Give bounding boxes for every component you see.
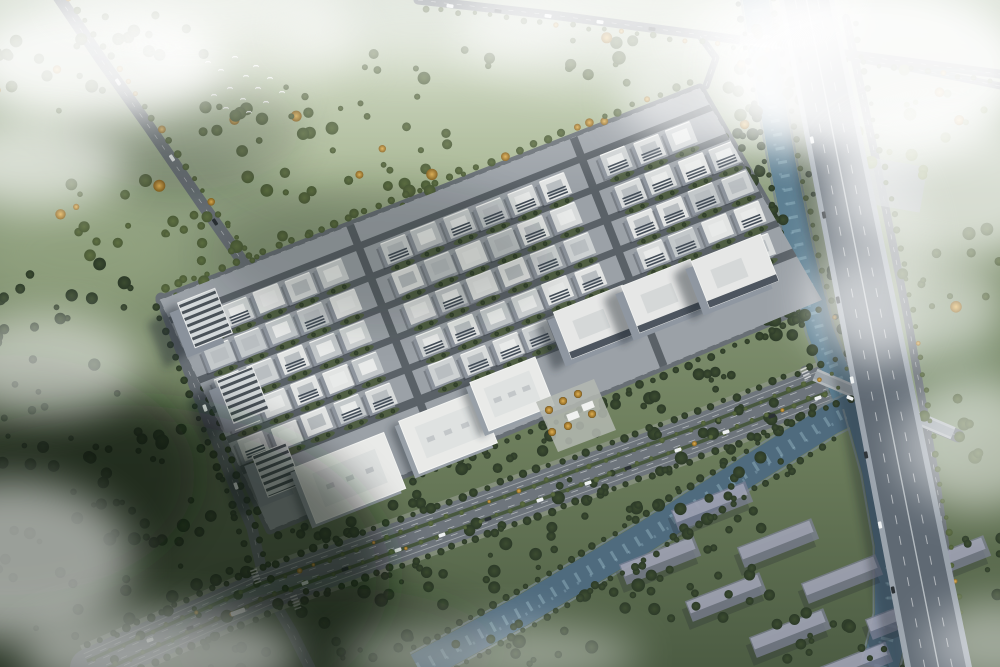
scene-canvas [0, 0, 1000, 667]
aerial-render [0, 0, 1000, 667]
